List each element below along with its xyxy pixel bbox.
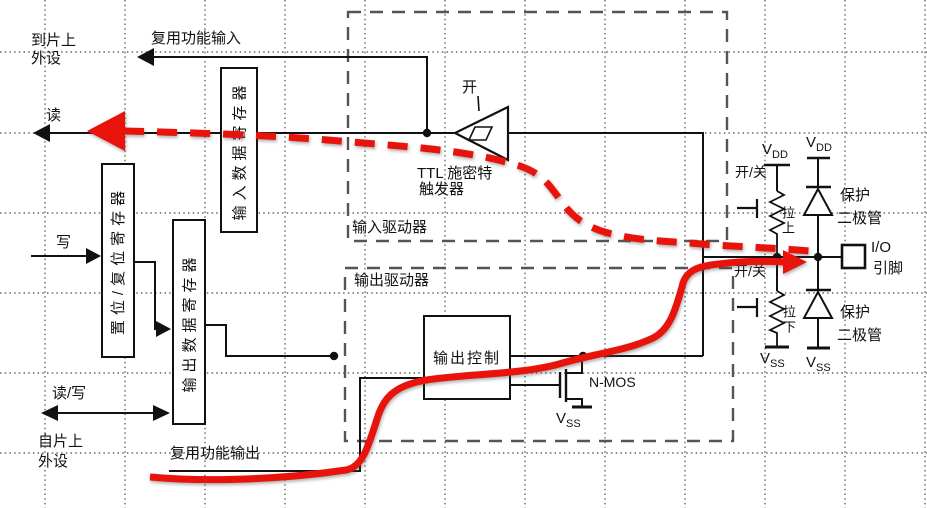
grid [0,0,927,508]
read-label: 读 [46,107,61,125]
output-reg-out-wire [206,325,334,356]
pulldown-on-off-label: 开/关 [734,263,766,280]
pullup-on-off-label: 开/关 [735,164,767,181]
alt-func-input-label: 复用功能输入 [151,30,241,48]
output-data-register-label: 输出数据寄存器 [179,252,200,392]
pull-up-label: 拉上 [781,206,794,236]
protection-diode-bottom [804,257,832,348]
to-chip-peripheral-label-2: 外设 [31,50,61,68]
read-arrow [33,124,50,142]
output-driver-label: 输出驱动器 [354,272,429,290]
set-reset-register: 置位/复位寄存器 [101,163,135,358]
circuit-canvas [0,0,927,508]
set-reset-arrow [156,321,171,337]
read-write-arrow-left [41,405,58,421]
from-chip-peripheral-label-1: 自片上 [38,433,83,451]
io-pin-label-2: 引脚 [873,260,903,278]
protection-diode-bottom-label-1: 保护 [840,304,870,322]
wires [31,57,842,471]
schmitt-on-label: 开 [462,79,477,97]
write-arrow [86,248,101,264]
input-data-register: 输入数据寄存器 [220,67,258,233]
write-label: 写 [56,234,71,252]
vss-pulldown-label: VSS [760,350,785,371]
output-data-register: 输出数据寄存器 [172,219,206,425]
enable-tick [478,96,479,111]
protection-diode-top-label-1: 保护 [840,187,870,205]
output-control-label: 输出控制 [433,347,501,368]
protection-diode-top-label-2: 二极管 [837,210,882,228]
io-pin-square [842,245,865,268]
from-chip-peripheral-label-2: 外设 [38,453,68,471]
nmos-transistor [560,358,592,407]
alt-func-output-label: 复用功能输出 [170,445,260,463]
to-chip-peripheral-label-1: 到片上 [31,32,76,50]
protection-diode-top [804,158,832,257]
protection-diode-bottom-label-2: 二极管 [837,327,882,345]
input-driver-box [348,12,727,241]
io-pin-label-1: I/O [871,239,891,257]
schmitt-label-2: 触发器 [419,181,464,199]
set-reset-register-label: 置位/复位寄存器 [108,186,129,335]
nmos-label: N-MOS [589,374,636,391]
read-write-label: 读/写 [52,385,86,403]
input-data-register-label: 输入数据寄存器 [229,80,250,220]
output-driver-box [345,268,733,441]
pull-down-label: 拉下 [782,305,795,335]
schmitt-trigger [455,96,508,160]
alt-func-in-arrow [137,48,154,66]
pull-up-switch [737,199,757,218]
output-control-box: 输出控制 [423,315,511,400]
gpio-structure-diagram: 输入数据寄存器 置位/复位寄存器 输出数据寄存器 输出控制 到片上 外设 复用功… [0,0,927,508]
read-write-arrow-right [153,405,170,421]
vdd-diode-label: VDD [806,134,832,155]
pull-down-switch [737,298,757,317]
set-reset-to-output-reg-wire [135,262,158,329]
alt-func-in-wire [153,57,427,133]
vss-nmos-label: VSS [556,410,581,431]
vdd-pullup-label: VDD [762,141,788,162]
vss-diode-label: VSS [806,354,831,375]
input-driver-label: 输入驱动器 [352,219,427,237]
